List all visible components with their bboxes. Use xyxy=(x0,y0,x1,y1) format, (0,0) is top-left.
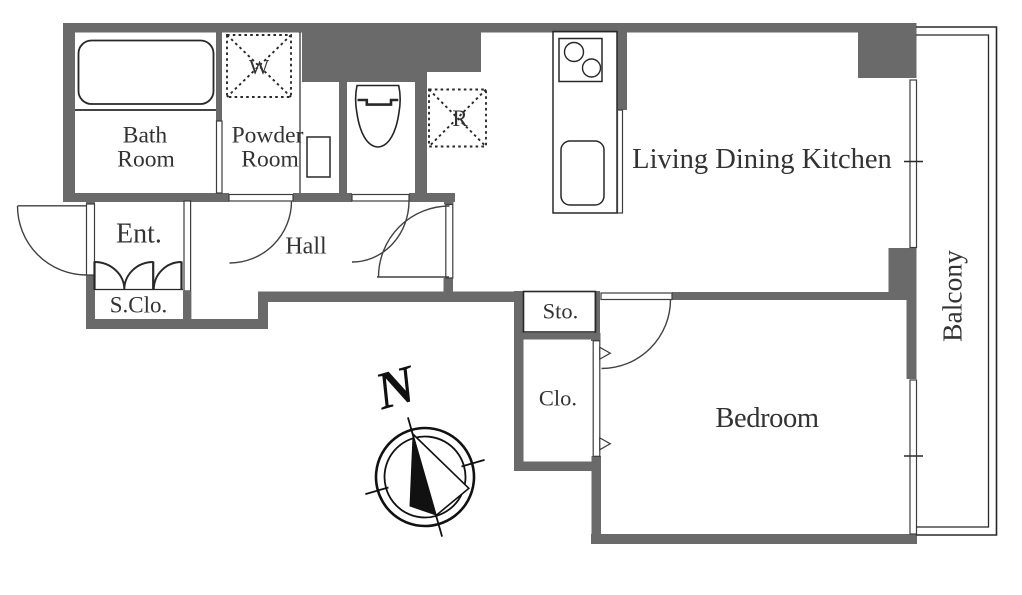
svg-text:W: W xyxy=(249,55,270,79)
svg-text:Sto.: Sto. xyxy=(543,299,579,324)
svg-text:Balcony: Balcony xyxy=(937,250,968,342)
svg-text:Clo.: Clo. xyxy=(539,386,577,411)
svg-text:Bedroom: Bedroom xyxy=(715,403,818,434)
svg-text:Bath: Bath xyxy=(123,123,168,149)
svg-text:Ent.: Ent. xyxy=(116,219,162,250)
svg-text:S.Clo.: S.Clo. xyxy=(110,293,168,318)
svg-text:Powder: Powder xyxy=(232,123,304,149)
svg-text:Living Dining Kitchen: Living Dining Kitchen xyxy=(632,144,892,175)
svg-text:Room: Room xyxy=(117,147,174,173)
svg-text:R: R xyxy=(452,106,468,131)
svg-text:Room: Room xyxy=(241,147,298,173)
svg-text:Hall: Hall xyxy=(285,234,327,260)
